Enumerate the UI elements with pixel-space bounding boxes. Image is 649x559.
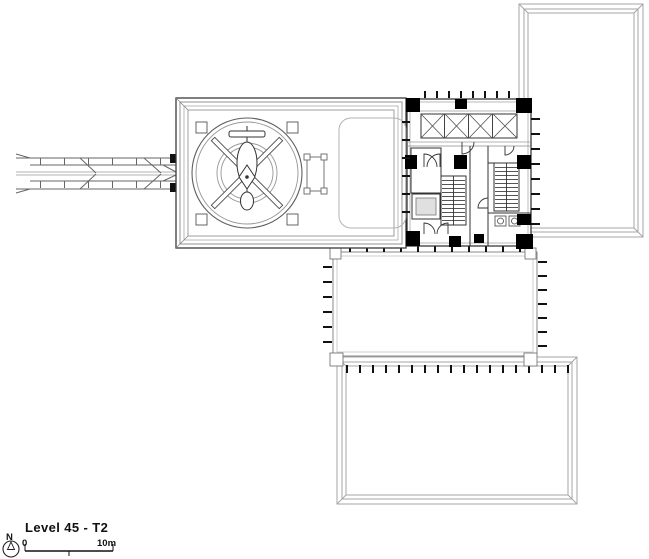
column-br <box>516 234 533 249</box>
tick-mark <box>468 114 469 138</box>
plate-mullions-right <box>538 261 547 347</box>
tick-mark <box>531 178 540 180</box>
tick-mark <box>323 341 332 343</box>
tick-mark <box>398 365 400 373</box>
equipment-pad-corner-1 <box>304 154 310 160</box>
tick-mark <box>437 365 439 373</box>
tick-mark <box>436 91 438 98</box>
wc-fixture-1-bowl <box>498 218 504 224</box>
tick-mark <box>160 158 161 165</box>
tick-mark <box>538 289 547 291</box>
plate-mullions-left <box>323 266 332 343</box>
equipment-pad-corner-2 <box>321 154 327 160</box>
column-r-low <box>517 214 531 225</box>
tick-mark <box>323 311 332 313</box>
plate-corner-br <box>524 353 537 366</box>
tick-mark <box>323 266 332 268</box>
tick-mark <box>411 365 413 373</box>
tick-mark <box>40 158 41 165</box>
roof-outline-upper <box>519 4 643 237</box>
tick-mark <box>476 365 478 373</box>
tick-mark <box>538 345 547 347</box>
tick-mark <box>323 296 332 298</box>
bridge-chevrons <box>80 158 176 189</box>
tick-mark <box>531 133 540 135</box>
equipment-pad-corner-3 <box>304 188 310 194</box>
floor-plate-outline <box>323 245 569 373</box>
tick-mark <box>460 91 462 98</box>
equipment-pad-corner-4 <box>321 188 327 194</box>
tick-mark <box>112 158 113 165</box>
helipad-platform <box>176 98 406 248</box>
tick-mark <box>448 91 450 98</box>
tick-mark <box>515 365 517 373</box>
tick-mark <box>402 211 410 213</box>
floor-plate-outer <box>333 252 537 356</box>
roof-upper-outer <box>519 4 643 237</box>
column-bl <box>406 231 420 246</box>
column-tm <box>455 99 467 109</box>
tick-mark <box>567 365 569 373</box>
tick-mark <box>112 181 113 188</box>
tick-mark <box>531 148 540 150</box>
bridge-ties-lower <box>40 181 161 188</box>
equipment-pad-body <box>307 157 324 191</box>
column-bm2 <box>474 234 484 243</box>
tick-mark <box>88 158 89 165</box>
tick-mark <box>554 365 556 373</box>
bridge-ties-upper <box>40 158 161 165</box>
tick-mark <box>484 91 486 98</box>
platform-outer <box>176 98 406 248</box>
plate-corner-tl <box>330 248 341 259</box>
bridge-structure <box>16 154 177 193</box>
wc-fixture-2-bowl <box>512 218 518 224</box>
tick-mark <box>385 365 387 373</box>
tick-mark <box>323 326 332 328</box>
column-mr <box>517 155 531 169</box>
tick-mark <box>402 157 410 159</box>
tick-mark <box>372 365 374 373</box>
core-mullions-top <box>424 91 510 98</box>
tick-mark <box>136 158 137 165</box>
tick-mark <box>64 158 65 165</box>
floor-plan-svg: Level 45 - T2 N 0 10m <box>0 0 649 559</box>
plate-corner-bl <box>330 353 343 366</box>
tick-mark <box>346 365 348 373</box>
tick-mark <box>88 181 89 188</box>
roof-lower-outer <box>337 357 577 504</box>
column-tr <box>516 98 532 113</box>
tick-mark <box>496 91 498 98</box>
tick-mark <box>531 208 540 210</box>
floor-plate-inner <box>337 256 533 352</box>
helicopter-stabilizer-bar <box>229 131 265 137</box>
building-core <box>402 91 540 249</box>
tick-mark <box>160 181 161 188</box>
tick-mark <box>40 181 41 188</box>
tick-mark <box>136 181 137 188</box>
tick-mark <box>444 114 445 138</box>
column-mm <box>454 155 467 169</box>
scale-bar: 0 10m <box>22 538 116 556</box>
tick-mark <box>538 303 547 305</box>
north-compass-icon: N <box>3 532 19 557</box>
tick-mark <box>402 175 410 177</box>
tick-mark <box>538 261 547 263</box>
tick-mark <box>323 281 332 283</box>
tick-mark <box>541 365 543 373</box>
tick-mark <box>64 181 65 188</box>
stair-b <box>494 163 519 211</box>
column-bm <box>449 236 461 247</box>
tick-mark <box>472 91 474 98</box>
tick-mark <box>531 118 540 120</box>
tick-mark <box>450 365 452 373</box>
roof-outline-lower <box>337 357 577 504</box>
tick-mark <box>424 91 426 98</box>
tick-mark <box>492 114 493 138</box>
tick-mark <box>359 365 361 373</box>
tick-mark <box>463 365 465 373</box>
tick-mark <box>424 365 426 373</box>
tick-mark <box>402 121 410 123</box>
tick-mark <box>402 193 410 195</box>
tick-mark <box>538 331 547 333</box>
tick-mark <box>508 91 510 98</box>
helicopter-hub-center <box>245 175 249 179</box>
equipment-pad <box>304 154 327 194</box>
elevator-car <box>416 198 436 215</box>
drawing-title: Level 45 - T2 <box>25 520 108 535</box>
helicopter-tail <box>241 192 254 210</box>
annotations: Level 45 - T2 N 0 10m <box>3 520 116 557</box>
tick-mark <box>531 223 540 225</box>
north-needle <box>8 542 15 550</box>
tick-mark <box>402 139 410 141</box>
tick-mark <box>538 275 547 277</box>
column-tl <box>406 98 420 112</box>
architectural-floor-plan: Level 45 - T2 N 0 10m <box>0 0 649 559</box>
tick-mark <box>531 163 540 165</box>
stair-a <box>441 176 466 225</box>
tick-mark <box>538 317 547 319</box>
shaft-band <box>421 114 517 138</box>
tick-mark <box>489 365 491 373</box>
plate-corner-tr <box>525 248 536 259</box>
tick-mark <box>531 193 540 195</box>
bridge-end-flares <box>16 154 30 193</box>
tick-mark <box>502 365 504 373</box>
